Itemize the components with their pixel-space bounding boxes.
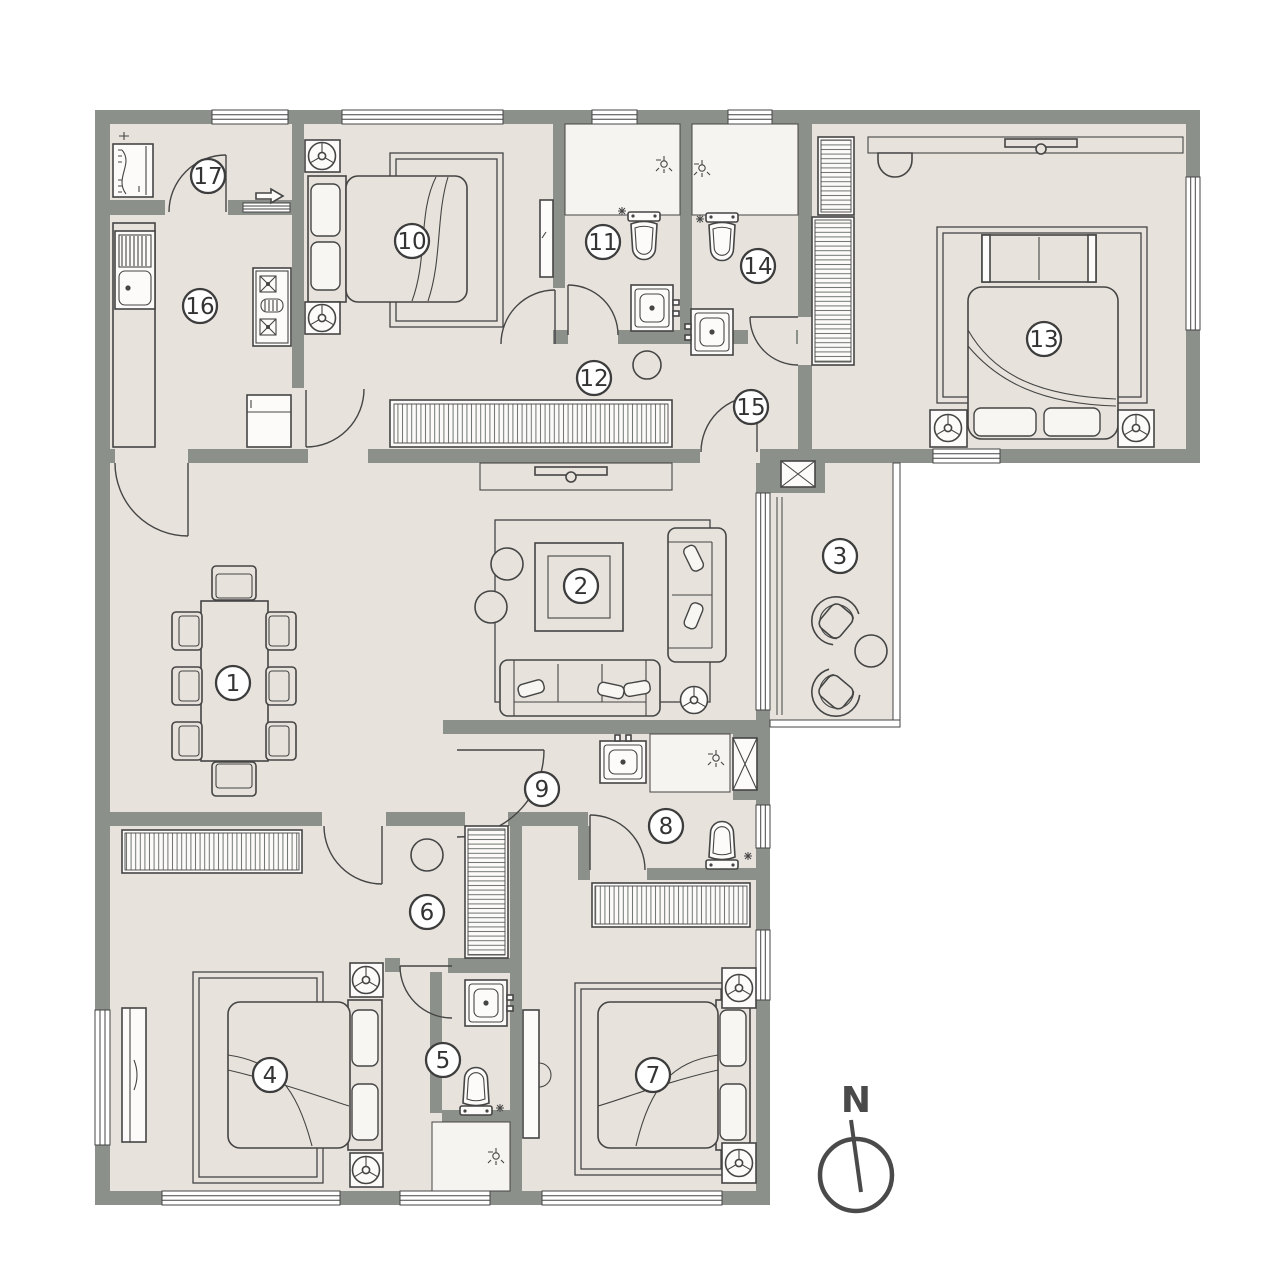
svg-text:9: 9: [535, 777, 550, 803]
svg-text:4: 4: [263, 1063, 278, 1089]
wall-bed7-north: [647, 868, 757, 880]
compass-north-label: N: [841, 1080, 871, 1121]
dining-chair: [172, 612, 202, 650]
wall-dining-bed4-c: [508, 812, 588, 826]
side-table-icon: [855, 635, 887, 667]
toilet-icon: [706, 213, 738, 261]
duct-column: [733, 728, 757, 800]
wall-bath5-stub-a: [385, 958, 400, 972]
loveseat: [668, 528, 726, 662]
room-label-5: 5: [426, 1043, 460, 1077]
window: [212, 110, 288, 124]
shower-area: [565, 124, 680, 215]
lamp-icon: [309, 143, 336, 170]
wall-entry-a: [110, 200, 165, 215]
lamp-icon: [353, 1157, 380, 1184]
dining-chair: [266, 612, 296, 650]
lamp-icon: [1123, 415, 1150, 442]
pouf-icon: [491, 548, 523, 580]
wall-dining-bed4-a: [110, 812, 322, 826]
toilet-icon: [628, 212, 660, 260]
wall-bath14-bed13-b: [798, 365, 812, 463]
window: [342, 110, 503, 124]
svg-text:1: 1: [226, 671, 241, 697]
wardrobe: [390, 400, 672, 447]
svg-text:17: 17: [193, 164, 222, 190]
room-label-9: 9: [525, 772, 559, 806]
dining-chair: [266, 722, 296, 760]
spray-icon: [744, 852, 752, 860]
svg-text:2: 2: [574, 574, 589, 600]
room-label-4: 4: [253, 1058, 287, 1092]
wall-bed4-bath5: [430, 958, 442, 1113]
room-label-17: 17: [191, 159, 225, 193]
window: [728, 110, 772, 124]
fridge-icon: [247, 395, 291, 447]
floor-lamp-icon: [681, 687, 708, 714]
spray-icon: [618, 207, 626, 215]
toilet-icon: [706, 822, 738, 870]
floor-plan-page: 1234567891011121314151617 N: [0, 0, 1280, 1280]
svg-text:5: 5: [436, 1048, 451, 1074]
pillow: [352, 1010, 378, 1066]
kitchen-sink-icon: [115, 231, 155, 309]
svg-text:11: 11: [588, 230, 617, 256]
washing-machine-icon: [113, 144, 153, 197]
shower-area: [692, 124, 798, 215]
sink-icon: [631, 285, 679, 331]
wardrobe: [465, 826, 508, 958]
window: [1186, 177, 1200, 330]
wall-kitchen-bed10: [292, 124, 304, 388]
svg-text:3: 3: [833, 544, 848, 570]
sink-icon: [600, 735, 646, 783]
dining-chair: [172, 722, 202, 760]
window: [162, 1191, 340, 1205]
round-table-icon: [411, 839, 443, 871]
window: [756, 805, 770, 848]
floor-plan-drawing: 1234567891011121314151617 N: [0, 0, 1280, 1280]
room-label-3: 3: [823, 539, 857, 573]
sink-icon: [685, 309, 733, 355]
window: [542, 1191, 722, 1205]
pillow: [720, 1084, 746, 1140]
window: [592, 110, 637, 124]
toilet-icon: [460, 1068, 492, 1116]
room-label-16: 16: [183, 289, 217, 323]
room-label-7: 7: [636, 1058, 670, 1092]
wardrobe: [592, 883, 750, 927]
dining-chair: [212, 762, 256, 796]
svg-text:7: 7: [646, 1063, 661, 1089]
shaft-icon: [781, 461, 815, 487]
wall-living-south: [443, 720, 756, 734]
sofa: [500, 660, 660, 716]
pillow: [311, 184, 340, 236]
svg-text:12: 12: [579, 366, 608, 392]
svg-text:14: 14: [743, 254, 772, 280]
room-label-8: 8: [649, 809, 683, 843]
wall-mirror-icon: [540, 200, 553, 277]
room-label-13: 13: [1027, 322, 1061, 356]
lamp-icon: [353, 967, 380, 994]
lamp-icon: [935, 415, 962, 442]
sink-icon: [465, 980, 513, 1026]
window: [933, 449, 1000, 463]
room-label-10: 10: [395, 224, 429, 258]
wall-bed10-bath11: [553, 124, 565, 288]
dining-chair: [266, 667, 296, 705]
lamp-icon: [309, 305, 336, 332]
compass-north: N: [820, 1080, 892, 1211]
svg-text:10: 10: [397, 229, 426, 255]
dining-chair: [212, 566, 256, 600]
wall-dining-bed4-b: [386, 812, 465, 826]
window: [756, 930, 770, 1000]
spray-icon: [696, 215, 704, 223]
window: [95, 1010, 110, 1145]
balcony-door-window: [756, 493, 770, 710]
shower-area: [650, 734, 730, 792]
wardrobe: [812, 137, 854, 365]
room-label-2: 2: [564, 569, 598, 603]
stool-icon: [633, 351, 661, 379]
lamp-icon: [726, 975, 753, 1002]
pillow: [1044, 408, 1100, 436]
spray-icon: [496, 1104, 504, 1112]
wall-hall-stub: [578, 826, 590, 880]
svg-text:15: 15: [736, 395, 765, 421]
room-label-1: 1: [216, 666, 250, 700]
pillow: [974, 408, 1036, 436]
shower-area: [432, 1122, 510, 1191]
pillow: [311, 242, 340, 290]
dresser-icon: [122, 1008, 146, 1142]
room-label-11: 11: [586, 225, 620, 259]
svg-text:8: 8: [659, 814, 674, 840]
svg-text:6: 6: [420, 900, 435, 926]
lamp-icon: [726, 1150, 753, 1177]
threshold: [243, 203, 290, 212]
stove-icon: [253, 268, 291, 346]
svg-text:13: 13: [1029, 327, 1058, 353]
pillow: [352, 1084, 378, 1140]
room-label-15: 15: [734, 390, 768, 424]
wall-mid-horizontal: [110, 449, 757, 463]
window: [400, 1191, 490, 1205]
bed-bench: [982, 235, 1096, 282]
dining-chair: [172, 667, 202, 705]
compass-needle-icon: [851, 1120, 861, 1192]
room-label-12: 12: [577, 361, 611, 395]
room-label-6: 6: [410, 895, 444, 929]
pillow: [720, 1010, 746, 1066]
room-label-14: 14: [741, 249, 775, 283]
wall-bath5-stub-b: [448, 958, 510, 973]
wardrobe: [122, 830, 302, 873]
pouf-icon: [475, 591, 507, 623]
wall-bath14-bed13-a: [798, 124, 812, 317]
svg-text:16: 16: [185, 294, 214, 320]
